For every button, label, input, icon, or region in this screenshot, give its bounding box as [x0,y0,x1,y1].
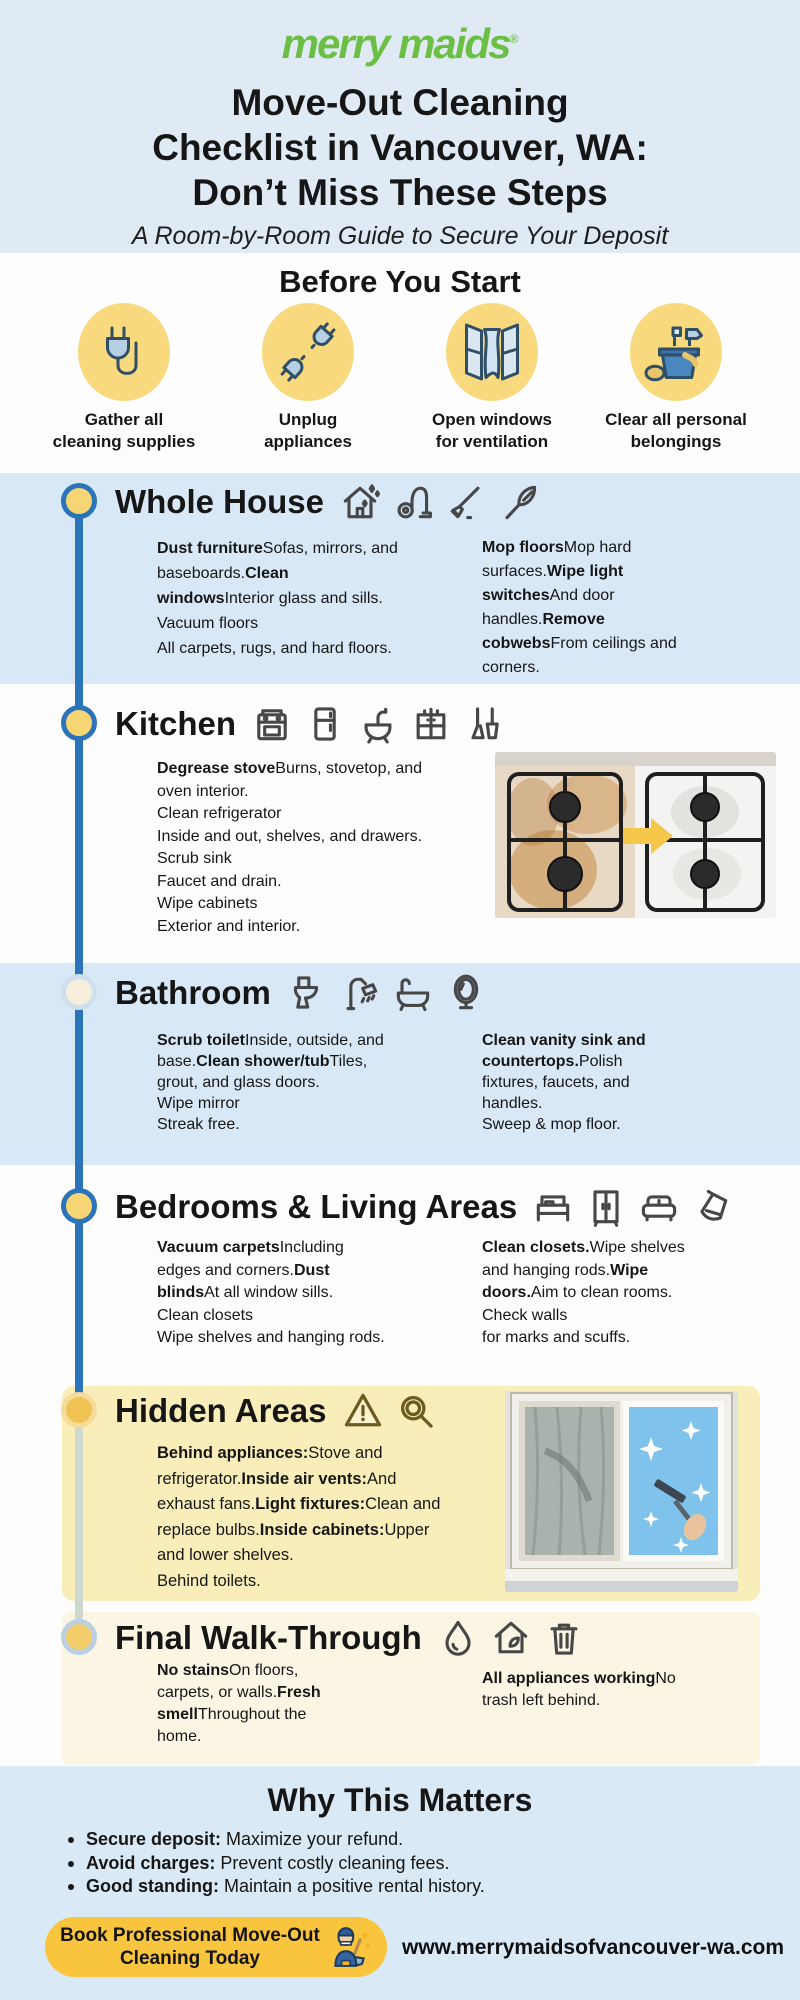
refrigerator-icon [303,702,347,746]
broom-dustpan-icon [462,702,506,746]
why-this-matters-list: Secure deposit: Maximize your refund.Avo… [64,1828,704,1899]
checklist-text: Vacuum carpetsIncluding edges and corner… [157,1237,462,1350]
section-title: Kitchen [115,705,236,743]
why-bullet: Secure deposit: Maximize your refund. [64,1828,704,1852]
before-item: Open windows for ventilation [404,303,580,453]
unplugged-plugs-icon [262,303,354,401]
window-cleaning-photo [505,1391,738,1592]
timeline-dot-bathroom [61,974,97,1010]
toilet-icon [285,971,329,1015]
section-title: Bathroom [115,974,271,1012]
before-item: Gather all cleaning supplies [36,303,212,453]
checklist-text: Mop floorsMop hard surfaces.Wipe light s… [482,536,727,680]
section-header-kitchen: Kitchen [115,701,506,747]
section-title: Bedrooms & Living Areas [115,1188,517,1226]
merry-maids-logo: merry maids® [0,20,800,68]
vacuum-icon [391,480,435,524]
dustpan-icon [690,1185,734,1229]
section-header-hidden-areas: Hidden Areas [115,1388,438,1434]
sofa-icon [637,1185,681,1229]
sink-icon [356,702,400,746]
before-you-start-heading: Before You Start [0,264,800,300]
checklist-text: Clean closets.Wipe shelves and hanging r… [482,1237,747,1350]
why-bullet: Good standing: Maintain a positive renta… [64,1875,704,1899]
bed-icon [531,1185,575,1229]
wardrobe-icon [584,1185,628,1229]
section-header-whole-house: Whole House [115,479,541,525]
checklist-text: Behind appliances:Stove and refrigerator… [157,1441,492,1594]
timeline-dot-bedrooms [61,1188,97,1224]
before-item: Clear all personal belongings [588,303,764,453]
open-window-icon [446,303,538,401]
stove-before-after-photo [495,752,776,918]
section-header-bedrooms: Bedrooms & Living Areas [115,1184,734,1230]
checklist-text: Scrub toiletInside, outside, and base.Cl… [157,1030,452,1135]
checklist-text: All appliances workingNo trash left behi… [482,1668,737,1712]
mirror-icon [444,971,488,1015]
timeline-dot-kitchen [61,705,97,741]
checklist-text: No stainsOn floors, carpets, or walls.Fr… [157,1660,367,1748]
why-bullet: Avoid charges: Prevent costly cleaning f… [64,1852,704,1876]
cleaner-person-icon [326,1924,372,1970]
section-title: Whole House [115,483,324,521]
section-header-bathroom: Bathroom [115,970,488,1016]
magnifier-icon [394,1389,438,1433]
timeline-dot-whole-house [61,483,97,519]
infographic-page: merry maids® Move-Out Cleaning Checklist… [0,0,800,2000]
checklist-text: Dust furnitureSofas, mirrors, and basebo… [157,536,462,661]
section-title: Final Walk-Through [115,1619,422,1657]
page-title: Move-Out Cleaning Checklist in Vancouver… [0,80,800,215]
house-leaf-icon [489,1616,533,1660]
house-sparkle-icon [338,480,382,524]
cleaning-bucket-icon [630,303,722,401]
before-item: Unplug appliances [220,303,396,453]
section-title-icons [285,971,488,1015]
checklist-text: Degrease stoveBurns, stovetop, and oven … [157,758,472,938]
timeline-dot-hidden-areas [61,1392,97,1428]
website-url[interactable]: www.merrymaidsofvancouver-wa.com [398,1936,788,1960]
section-title-icons [250,702,506,746]
power-plug-cord-icon [78,303,170,401]
cabinet-icon [409,702,453,746]
trash-icon [542,1616,586,1660]
bathtub-icon [391,971,435,1015]
section-title: Hidden Areas [115,1392,327,1430]
book-cleaning-button[interactable]: Book Professional Move-Out Cleaning Toda… [45,1917,387,1977]
why-this-matters-heading: Why This Matters [0,1782,800,1819]
section-header-final-walkthrough: Final Walk-Through [115,1615,586,1661]
warning-icon [341,1389,385,1433]
book-cleaning-label: Book Professional Move-Out Cleaning Toda… [60,1924,320,1970]
timeline-line [75,501,83,1410]
section-title-icons [436,1616,586,1660]
before-item-label: Unplug appliances [264,409,352,453]
section-title-icons [531,1185,734,1229]
stove-icon [250,702,294,746]
checklist-text: Clean vanity sink and countertops.Polish… [482,1030,722,1135]
before-item-label: Clear all personal belongings [605,409,747,453]
droplet-icon [436,1616,480,1660]
page-subtitle: A Room-by-Room Guide to Secure Your Depo… [0,222,800,251]
shower-icon [338,971,382,1015]
section-title-icons [341,1389,438,1433]
push-broom-icon [444,480,488,524]
registered-trademark: ® [509,32,518,46]
section-title-icons [338,480,541,524]
before-item-label: Gather all cleaning supplies [53,409,196,453]
timeline-line-faded [75,1410,83,1636]
timeline-dot-final-walkthrough [61,1619,97,1655]
before-you-start-items: Gather all cleaning suppliesUnplug appli… [36,303,764,453]
feather-duster-icon [497,480,541,524]
before-item-label: Open windows for ventilation [432,409,552,453]
